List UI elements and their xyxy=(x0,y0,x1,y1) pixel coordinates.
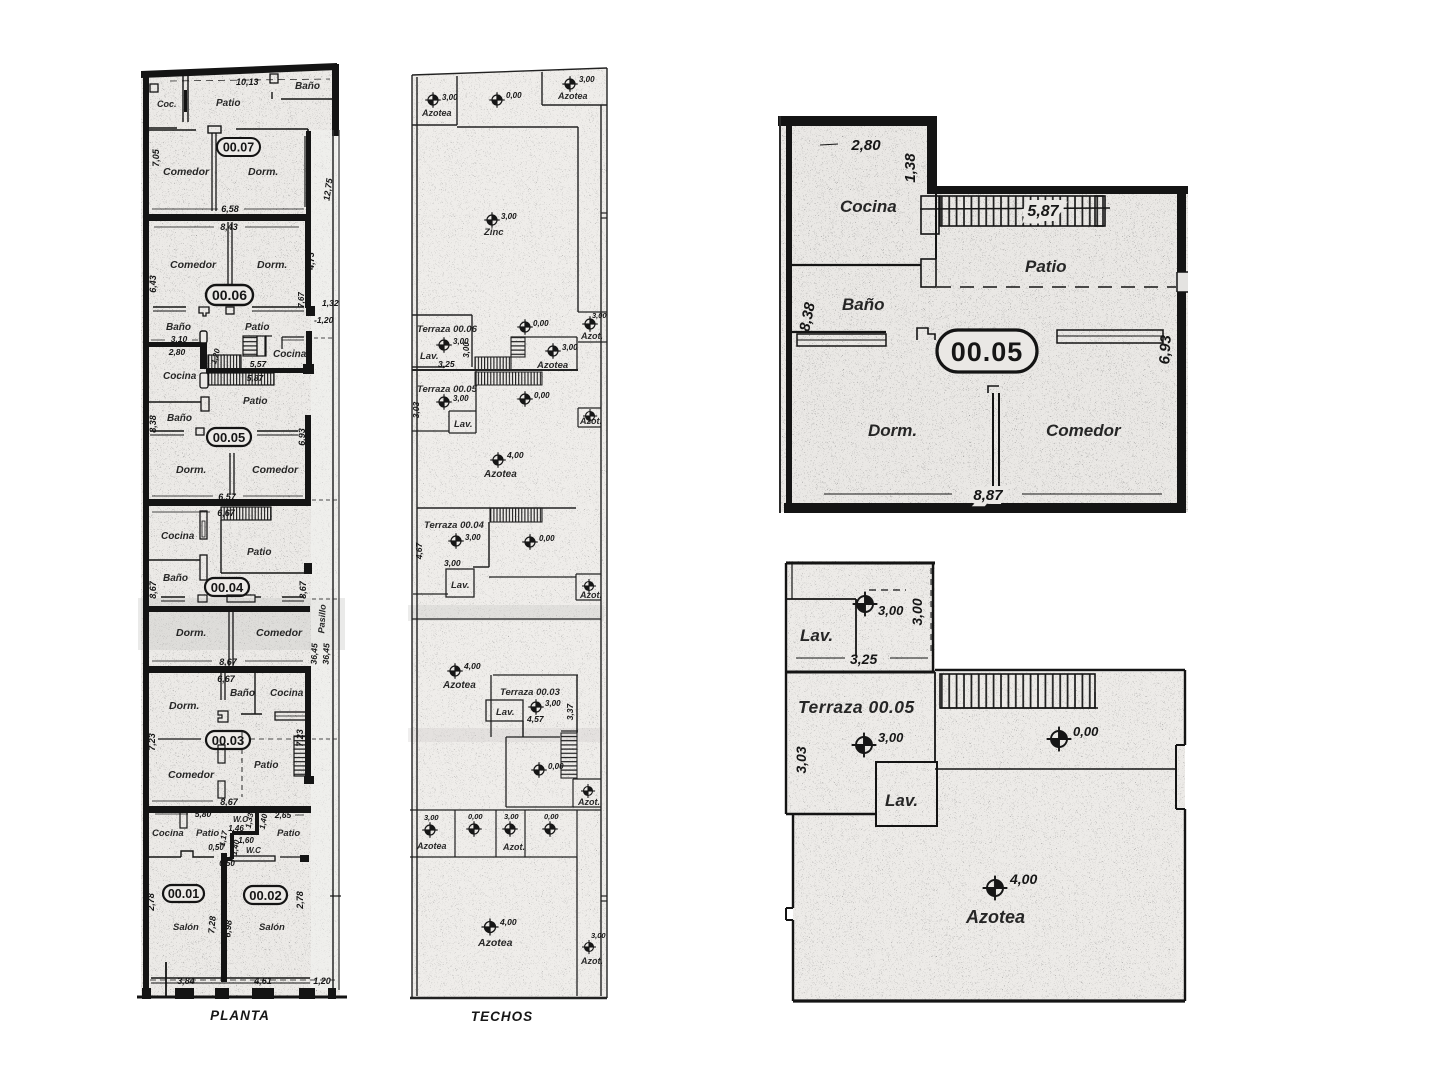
svg-text:3,00: 3,00 xyxy=(424,813,439,822)
svg-text:8,38: 8,38 xyxy=(148,415,158,433)
svg-text:Azotea: Azotea xyxy=(557,91,588,101)
svg-text:0,00: 0,00 xyxy=(544,812,559,821)
svg-text:Azotea: Azotea xyxy=(442,680,476,691)
svg-text:10,13: 10,13 xyxy=(236,77,259,87)
svg-text:Cocina: Cocina xyxy=(840,197,897,216)
svg-text:00.07: 00.07 xyxy=(223,141,254,155)
svg-text:4,61: 4,61 xyxy=(253,976,272,986)
svg-text:Azotea: Azotea xyxy=(965,907,1025,927)
svg-text:3,00: 3,00 xyxy=(878,603,904,618)
svg-text:Baño: Baño xyxy=(166,322,191,333)
svg-text:6,67: 6,67 xyxy=(217,674,236,684)
svg-text:6,58: 6,58 xyxy=(221,204,239,214)
svg-text:3,00: 3,00 xyxy=(504,812,519,821)
svg-text:4,57: 4,57 xyxy=(526,714,545,724)
svg-text:7,05: 7,05 xyxy=(151,148,161,167)
svg-text:Cocina: Cocina xyxy=(270,688,304,699)
svg-text:Lav.: Lav. xyxy=(885,791,918,810)
svg-text:Dorm.: Dorm. xyxy=(169,700,199,712)
svg-text:Comedor: Comedor xyxy=(170,259,217,271)
svg-text:7,23: 7,23 xyxy=(147,733,157,751)
svg-text:Lav.: Lav. xyxy=(420,351,439,362)
svg-text:3,00: 3,00 xyxy=(579,75,595,84)
svg-text:Dorm.: Dorm. xyxy=(257,259,287,271)
svg-text:3,84: 3,84 xyxy=(177,976,195,986)
svg-text:Comedor: Comedor xyxy=(1046,421,1122,440)
svg-text:00.02: 00.02 xyxy=(249,888,282,903)
svg-text:0,00: 0,00 xyxy=(534,391,550,400)
svg-text:Salón: Salón xyxy=(259,922,285,933)
svg-text:3,00: 3,00 xyxy=(592,311,607,320)
svg-text:3,00: 3,00 xyxy=(465,533,481,542)
svg-text:3,00: 3,00 xyxy=(591,931,606,940)
svg-text:PLANTA: PLANTA xyxy=(210,1008,270,1023)
svg-text:00.03: 00.03 xyxy=(212,733,245,748)
svg-text:Coc.: Coc. xyxy=(157,99,177,109)
svg-text:Dorm.: Dorm. xyxy=(248,166,278,178)
svg-text:Azotea: Azotea xyxy=(477,937,513,949)
svg-text:Lav.: Lav. xyxy=(451,580,470,591)
svg-text:2,78: 2,78 xyxy=(295,891,305,910)
svg-text:00.05: 00.05 xyxy=(951,337,1024,367)
svg-text:4,00: 4,00 xyxy=(463,661,481,671)
svg-text:8,67: 8,67 xyxy=(298,580,308,599)
svg-text:Zinc: Zinc xyxy=(483,227,504,238)
svg-text:Azot.: Azot. xyxy=(580,331,603,341)
svg-text:Azot.: Azot. xyxy=(580,956,603,966)
svg-text:3,25: 3,25 xyxy=(850,651,877,667)
svg-text:4,00: 4,00 xyxy=(506,450,524,460)
svg-text:Baño: Baño xyxy=(230,688,255,699)
svg-text:Baño: Baño xyxy=(295,81,320,92)
svg-text:Cocina: Cocina xyxy=(161,531,195,542)
svg-text:3,03: 3,03 xyxy=(411,401,421,418)
svg-text:5,87: 5,87 xyxy=(1027,203,1059,220)
svg-text:2,65: 2,65 xyxy=(274,810,292,820)
svg-text:2,80: 2,80 xyxy=(168,347,186,357)
svg-text:0,50: 0,50 xyxy=(208,843,224,852)
svg-text:Terraza 00.06: Terraza 00.06 xyxy=(417,324,478,335)
svg-text:3,00: 3,00 xyxy=(462,342,471,358)
svg-text:Patio: Patio xyxy=(243,396,267,407)
svg-text:Salón: Salón xyxy=(173,922,199,933)
svg-text:Dorm.: Dorm. xyxy=(868,421,917,440)
svg-text:Pasillo: Pasillo xyxy=(316,604,328,634)
svg-text:0,00: 0,00 xyxy=(506,91,522,100)
svg-text:1,38: 1,38 xyxy=(902,153,919,183)
svg-text:Terraza 00.04: Terraza 00.04 xyxy=(424,520,485,531)
svg-text:00.05: 00.05 xyxy=(213,430,246,445)
svg-text:3,03: 3,03 xyxy=(793,746,809,773)
svg-text:Patio: Patio xyxy=(216,98,240,109)
svg-text:Azot.: Azot. xyxy=(502,842,525,852)
svg-text:3,37: 3,37 xyxy=(565,702,575,720)
svg-text:0,00: 0,00 xyxy=(539,534,555,543)
svg-text:-1,20: -1,20 xyxy=(314,315,334,325)
svg-text:8,43: 8,43 xyxy=(220,222,238,232)
svg-text:8,67: 8,67 xyxy=(148,580,158,599)
svg-text:36,45: 36,45 xyxy=(308,643,319,665)
svg-text:7,28: 7,28 xyxy=(206,916,217,934)
svg-text:3,00: 3,00 xyxy=(442,93,458,102)
svg-text:Comedor: Comedor xyxy=(252,464,299,476)
svg-text:6,43: 6,43 xyxy=(148,275,158,293)
svg-text:5,57: 5,57 xyxy=(250,359,268,369)
svg-text:Patio: Patio xyxy=(254,760,278,771)
svg-text:Azot.: Azot. xyxy=(577,797,600,807)
svg-text:8,67: 8,67 xyxy=(220,797,239,807)
svg-text:Cocina: Cocina xyxy=(163,371,197,382)
svg-text:6,98: 6,98 xyxy=(222,920,233,938)
svg-text:6,93: 6,93 xyxy=(1156,334,1175,365)
svg-text:00.01: 00.01 xyxy=(168,887,199,901)
svg-text:7,67: 7,67 xyxy=(297,292,306,308)
svg-text:3,25: 3,25 xyxy=(438,359,455,369)
svg-text:Baño: Baño xyxy=(167,413,192,424)
svg-text:3,00: 3,00 xyxy=(545,699,561,708)
svg-text:Patio: Patio xyxy=(196,828,219,839)
svg-text:Comedor: Comedor xyxy=(256,627,303,639)
svg-text:3,00: 3,00 xyxy=(501,212,517,221)
svg-text:Azotea: Azotea xyxy=(483,469,517,480)
svg-text:Terraza 00.05: Terraza 00.05 xyxy=(798,697,915,717)
svg-text:0,00: 0,00 xyxy=(1073,724,1099,739)
svg-text:2,80: 2,80 xyxy=(850,137,881,154)
svg-text:4,67: 4,67 xyxy=(414,541,424,560)
svg-text:8,87: 8,87 xyxy=(973,487,1003,504)
svg-text:Baño: Baño xyxy=(842,295,885,314)
svg-text:Dorm.: Dorm. xyxy=(176,627,206,639)
svg-text:2,78: 2,78 xyxy=(146,893,156,912)
svg-text:Dorm.: Dorm. xyxy=(176,464,206,476)
svg-text:8,67: 8,67 xyxy=(219,657,238,667)
svg-text:4,00: 4,00 xyxy=(499,917,517,927)
svg-text:3,00: 3,00 xyxy=(562,343,578,352)
svg-text:00.04: 00.04 xyxy=(211,580,244,595)
svg-text:W.C: W.C xyxy=(246,846,261,855)
svg-text:3,00: 3,00 xyxy=(453,394,469,403)
svg-text:Lav.: Lav. xyxy=(454,419,473,430)
svg-text:Lav.: Lav. xyxy=(496,707,515,718)
svg-text:0,00: 0,00 xyxy=(468,812,483,821)
svg-text:00.06: 00.06 xyxy=(212,287,247,303)
svg-text:Azotea: Azotea xyxy=(421,108,452,118)
svg-text:Patio: Patio xyxy=(247,547,271,558)
svg-text:Lav.: Lav. xyxy=(800,626,833,645)
svg-text:3,00: 3,00 xyxy=(909,598,925,625)
svg-text:Cocina: Cocina xyxy=(152,828,184,839)
svg-text:1,20: 1,20 xyxy=(313,976,331,986)
svg-text:Patio: Patio xyxy=(277,828,300,839)
svg-text:Cocina: Cocina xyxy=(273,349,307,360)
svg-text:36,45: 36,45 xyxy=(320,643,331,665)
svg-text:Comedor: Comedor xyxy=(168,769,215,781)
svg-text:4,00: 4,00 xyxy=(1009,871,1037,887)
svg-text:Terraza 00.03: Terraza 00.03 xyxy=(500,687,561,698)
svg-text:Patio: Patio xyxy=(245,322,269,333)
svg-text:Patio: Patio xyxy=(1025,257,1067,276)
svg-text:TECHOS: TECHOS xyxy=(471,1009,533,1024)
svg-text:Azotea: Azotea xyxy=(416,841,447,851)
svg-text:0,00: 0,00 xyxy=(533,319,549,328)
svg-text:5,80: 5,80 xyxy=(195,809,212,819)
svg-text:Comedor: Comedor xyxy=(163,166,210,178)
svg-text:1,32: 1,32 xyxy=(322,298,339,308)
svg-text:3,00: 3,00 xyxy=(444,558,461,568)
svg-text:3,00: 3,00 xyxy=(878,730,904,745)
svg-text:1,46: 1,46 xyxy=(228,824,244,833)
svg-text:Baño: Baño xyxy=(163,573,188,584)
svg-text:Azot.: Azot. xyxy=(579,590,602,600)
